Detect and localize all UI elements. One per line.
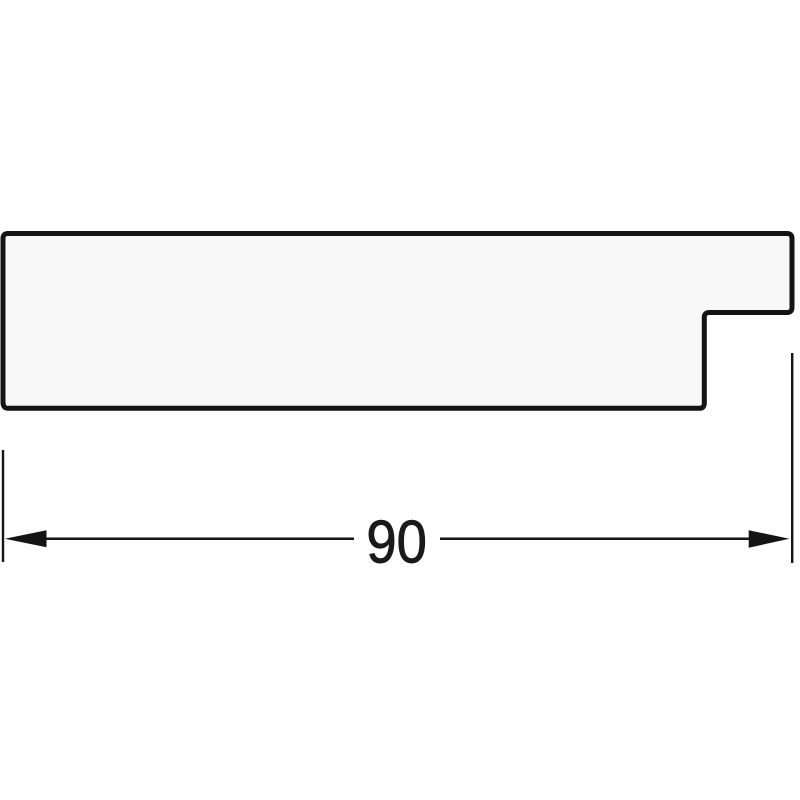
svg-text:90: 90: [366, 508, 427, 576]
